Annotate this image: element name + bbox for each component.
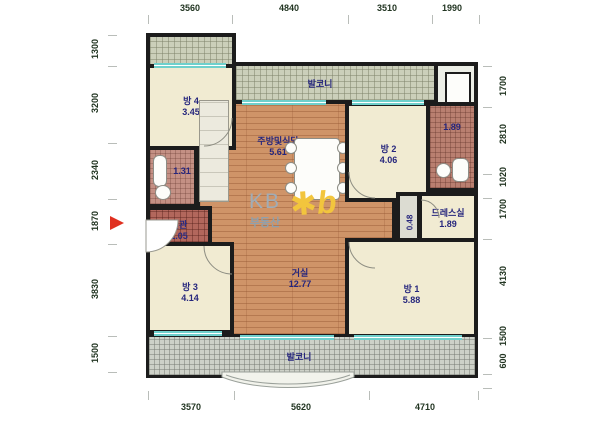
dim-left-5: 3830	[90, 267, 100, 311]
kb-watermark-subtext: 부동산	[232, 214, 298, 230]
ac-unit	[445, 72, 471, 104]
dim-right-2: 2810	[498, 112, 508, 156]
dim-top-1: 3560	[168, 3, 212, 13]
dim-bottom-1: 3570	[169, 402, 213, 412]
dim-top-4: 1990	[430, 3, 474, 13]
room-label-living: 거실 12.77	[270, 268, 330, 290]
dim-top-2: 4840	[267, 3, 311, 13]
room-label-entrance: 현관 1.05	[150, 220, 208, 242]
chair	[285, 142, 297, 154]
tick-mark	[483, 107, 492, 108]
closet-column	[199, 100, 229, 202]
sink	[436, 163, 451, 178]
tick-mark	[432, 15, 433, 24]
tick-mark	[348, 15, 349, 24]
tick-mark	[483, 198, 492, 199]
bathtub	[153, 155, 167, 187]
window	[352, 100, 424, 105]
dim-left-6: 1500	[90, 331, 100, 375]
tick-mark	[234, 391, 235, 400]
tick-mark	[483, 388, 492, 389]
tick-mark	[108, 372, 117, 373]
room-label-bang1: 방 1 5.88	[349, 284, 474, 306]
dim-bottom-2: 5620	[279, 402, 323, 412]
tick-mark	[483, 338, 492, 339]
tick-mark	[483, 239, 492, 240]
chair	[285, 162, 297, 174]
tick-mark	[108, 336, 117, 337]
room-label-bang3: 방 3 4.14	[150, 282, 230, 304]
window	[154, 331, 222, 336]
tick-mark	[483, 174, 492, 175]
tick-mark	[483, 374, 492, 375]
dim-left-4: 1870	[90, 199, 100, 243]
room-bath-right: 1.89	[426, 102, 478, 192]
tick-mark	[232, 15, 233, 24]
room-label-balcony-top: 발코니	[288, 79, 352, 90]
window	[242, 100, 326, 105]
room-bang1: 방 1 5.88	[345, 238, 478, 338]
dim-right-4: 1700	[498, 187, 508, 231]
room-label-balcony-bottom: 발코니	[267, 352, 331, 363]
tick-mark	[108, 143, 117, 144]
toilet	[155, 185, 171, 200]
window	[354, 335, 462, 340]
entrance-arrow-icon	[110, 216, 124, 230]
tick-mark	[148, 15, 149, 24]
window	[154, 63, 226, 68]
tick-mark	[478, 391, 479, 400]
dim-right-1: 1700	[498, 64, 508, 108]
tick-mark	[108, 244, 117, 245]
tick-mark	[148, 391, 149, 400]
dim-right-5: 4130	[498, 254, 508, 298]
tick-mark	[483, 66, 492, 67]
dim-left-1: 1300	[90, 27, 100, 71]
tick-mark	[108, 66, 117, 67]
tick-mark	[479, 15, 480, 24]
room-bang3: 방 3 4.14	[146, 242, 234, 334]
tick-mark	[369, 391, 370, 400]
dim-top-3: 3510	[365, 3, 409, 13]
toilet	[452, 158, 469, 182]
tick-mark	[108, 199, 117, 200]
room-balcony-bottom: 발코니	[146, 334, 478, 378]
room-label-bath-right: 1.89	[430, 122, 474, 133]
dim-left-3: 2340	[90, 148, 100, 192]
dim-left-2: 3200	[90, 81, 100, 125]
room-bang2: 방 2 4.06	[345, 102, 432, 202]
tick-mark	[108, 35, 117, 36]
kb-watermark-text: KB	[232, 190, 298, 214]
room-label-bang2: 방 2 4.06	[349, 144, 428, 166]
room-label-hall: 0.48	[405, 215, 414, 231]
dim-right-7: 600	[498, 339, 508, 383]
dim-bottom-3: 4710	[403, 402, 447, 412]
window	[240, 335, 334, 340]
floor-plan-canvas: 방 4 3.45 발코니 주방및식당 5.61 방 2 4.06 1.89	[0, 0, 600, 424]
room-label-dress: 드레스실 1.89	[422, 208, 474, 230]
room-bath-left: 1.31	[146, 146, 198, 208]
room-balcony-top: 발코니	[232, 62, 458, 104]
kb-star-logo-icon: ✱b	[289, 182, 338, 223]
